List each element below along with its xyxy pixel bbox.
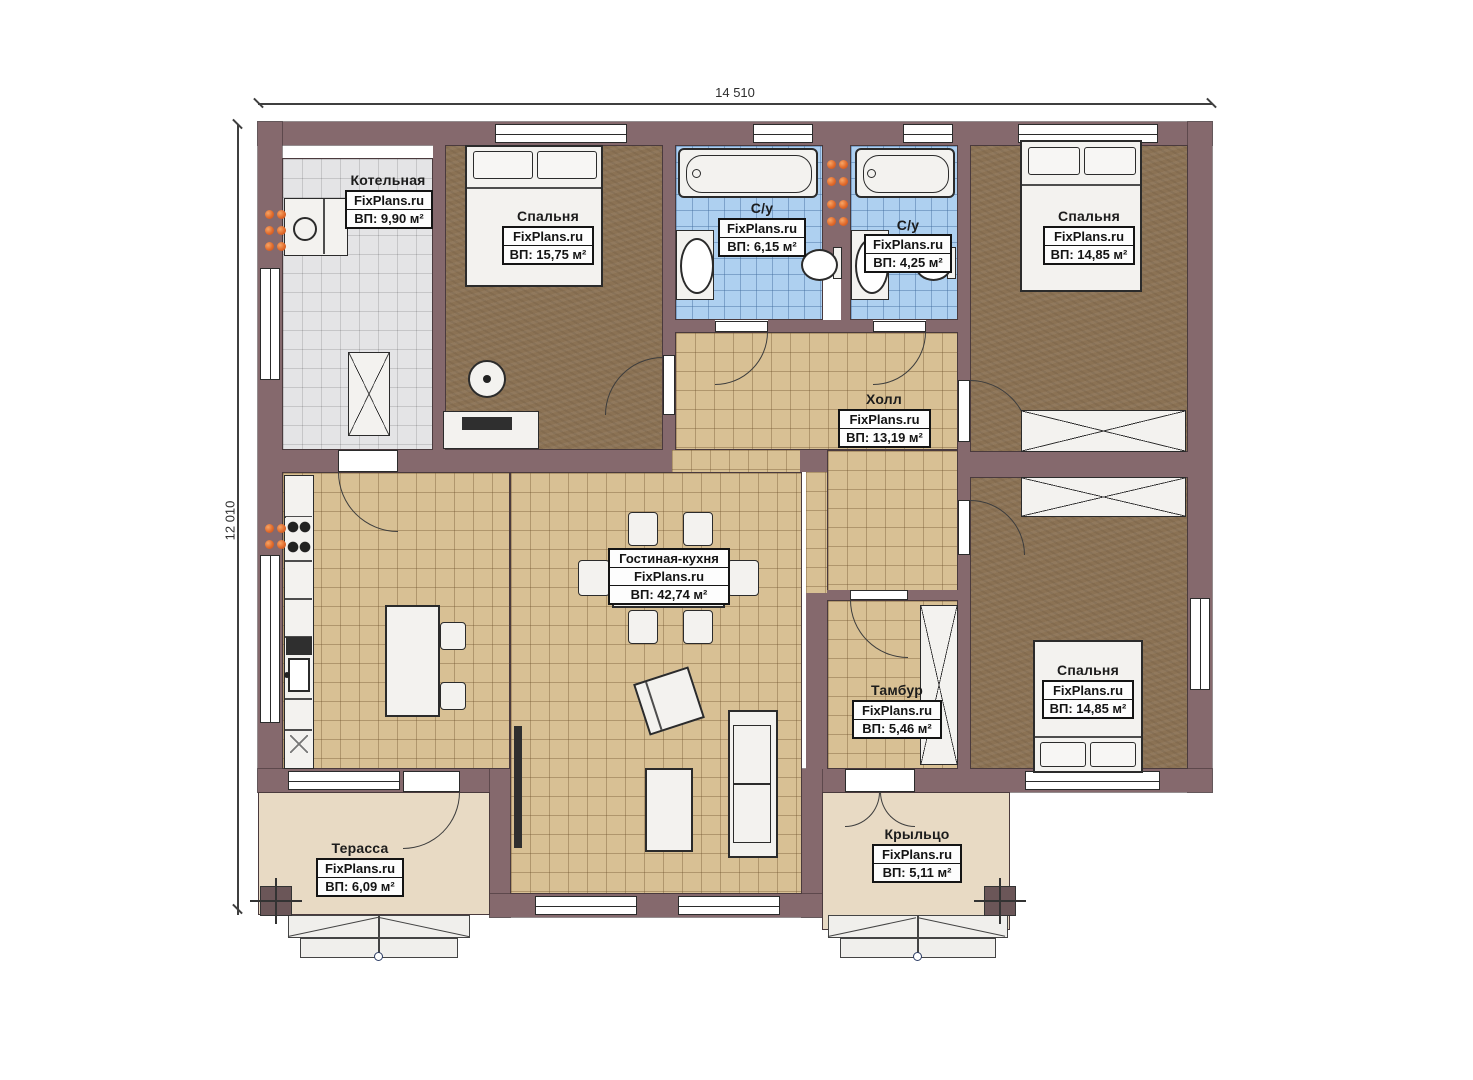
pillow xyxy=(1040,742,1086,767)
room-title-boiler: Котельная xyxy=(350,172,425,188)
door-leaf xyxy=(663,355,675,415)
floor-passage xyxy=(806,472,827,593)
room-label-bedroom3: FixPlans.ru ВП: 14,85 м² xyxy=(1042,680,1134,719)
brand-watermark: FixPlans.ru xyxy=(720,220,804,237)
room-title-terrace: Терасса xyxy=(332,840,389,856)
door-leaf xyxy=(958,500,970,555)
window xyxy=(678,896,780,915)
wall-partition xyxy=(841,260,850,320)
window xyxy=(753,124,813,143)
radiator-dot xyxy=(839,160,848,169)
radiator-dot xyxy=(827,200,836,209)
pot xyxy=(468,360,506,398)
divider xyxy=(285,729,312,731)
bathtub-drain xyxy=(692,169,701,178)
sofa xyxy=(728,710,778,858)
wardrobe xyxy=(1021,410,1186,452)
room-label-bath2: FixPlans.ru ВП: 4,25 м² xyxy=(864,234,952,273)
window xyxy=(1025,771,1160,790)
wall-partition xyxy=(958,145,970,380)
room-title-living: Гостиная-кухня xyxy=(610,550,728,567)
brand-watermark: FixPlans.ru xyxy=(610,567,728,585)
wardrobe xyxy=(920,605,958,765)
bar-stool xyxy=(440,682,466,710)
radiator-dot xyxy=(277,524,286,533)
entrance-door-leaf xyxy=(845,769,915,792)
wall-partition xyxy=(675,320,715,332)
wall-partition xyxy=(663,415,675,450)
divider xyxy=(285,560,312,562)
blanket-line xyxy=(1035,736,1141,738)
sink xyxy=(680,238,714,294)
radiator-dot xyxy=(265,524,274,533)
radiator-dot xyxy=(265,210,274,219)
boiler-equipment xyxy=(348,352,390,436)
room-title-bedroom2: Спальня xyxy=(1058,208,1120,224)
radiator-dot xyxy=(839,200,848,209)
divider xyxy=(285,698,312,700)
room-area: ВП: 4,25 м² xyxy=(866,253,950,271)
door-leaf xyxy=(715,321,768,332)
radiator-dot xyxy=(277,242,286,251)
room-title-bedroom3: Спальня xyxy=(1057,662,1119,678)
room-title-bath1: С/у xyxy=(751,200,773,216)
window xyxy=(1190,598,1210,690)
room-label-terrace: FixPlans.ru ВП: 6,09 м² xyxy=(316,858,404,897)
brand-watermark: FixPlans.ru xyxy=(504,228,592,245)
radiator-dot xyxy=(277,210,286,219)
room-area: ВП: 9,90 м² xyxy=(347,209,431,227)
bathtub-drain xyxy=(867,169,876,178)
door-leaf xyxy=(338,450,398,472)
radiator-dot xyxy=(265,226,274,235)
radiator-dot xyxy=(265,242,274,251)
wall-right xyxy=(1188,122,1212,792)
brand-watermark: FixPlans.ru xyxy=(318,860,402,877)
room-label-hall: FixPlans.ru ВП: 13,19 м² xyxy=(838,409,931,448)
blanket-line xyxy=(1022,184,1140,186)
toilet-bowl xyxy=(801,249,838,281)
wall-partition xyxy=(827,590,850,600)
floor-hall-opening xyxy=(672,450,800,472)
chair xyxy=(683,610,713,644)
radiator-dot xyxy=(827,177,836,186)
room-label-boiler: FixPlans.ru ВП: 9,90 м² xyxy=(345,190,433,229)
room-area: ВП: 5,46 м² xyxy=(854,719,940,737)
brand-watermark: FixPlans.ru xyxy=(866,236,950,253)
wall-partition xyxy=(768,320,873,332)
brand-watermark: FixPlans.ru xyxy=(854,702,940,719)
wardrobe xyxy=(1021,477,1186,517)
floor-plan: 14 510 12 010 xyxy=(0,0,1473,1080)
divider xyxy=(285,598,312,600)
bar-stool xyxy=(440,622,466,650)
cabinet-x xyxy=(290,735,308,753)
room-label-vestibule: FixPlans.ru ВП: 5,46 м² xyxy=(852,700,942,739)
wall-partition xyxy=(663,145,675,355)
wall-partition xyxy=(800,450,827,472)
bathtub xyxy=(678,148,818,198)
window xyxy=(288,771,400,790)
brand-watermark: FixPlans.ru xyxy=(874,846,960,863)
column-axis xyxy=(275,878,277,924)
bathtub xyxy=(855,148,955,198)
room-label-porch: FixPlans.ru ВП: 5,11 м² xyxy=(872,844,962,883)
radiator-dot xyxy=(265,540,274,549)
chair xyxy=(683,512,713,546)
room-title-bath2: С/у xyxy=(897,217,919,233)
step-marker xyxy=(374,952,383,961)
room-area: ВП: 42,74 м² xyxy=(610,585,728,603)
column-axis xyxy=(999,878,1001,924)
door-leaf xyxy=(403,771,460,792)
wall-partition xyxy=(398,450,672,472)
pillow xyxy=(473,151,533,179)
chair xyxy=(727,560,759,596)
brand-watermark: FixPlans.ru xyxy=(347,192,431,209)
chair xyxy=(628,512,658,546)
step-marker xyxy=(913,952,922,961)
dimension-height: 12 010 xyxy=(222,501,237,541)
room-title-vestibule: Тамбур xyxy=(871,682,923,698)
window xyxy=(903,124,953,143)
brand-watermark: FixPlans.ru xyxy=(840,411,929,428)
wall-partition xyxy=(958,442,970,452)
pillow xyxy=(537,151,597,179)
wall-partition xyxy=(908,590,958,600)
room-area: ВП: 15,75 м² xyxy=(504,245,592,263)
room-title-bedroom1: Спальня xyxy=(517,208,579,224)
room-label-bedroom2: FixPlans.ru ВП: 14,85 м² xyxy=(1043,226,1135,265)
window xyxy=(260,268,280,380)
sofa-cushion xyxy=(733,784,771,843)
radiator-dot xyxy=(839,217,848,226)
blanket-line xyxy=(467,187,601,189)
door-leaf xyxy=(958,380,970,442)
wall-partition xyxy=(926,320,958,332)
brand-watermark: FixPlans.ru xyxy=(1044,682,1132,699)
room-title-hall: Холл xyxy=(866,391,902,407)
radiator-dot xyxy=(827,217,836,226)
room-area: ВП: 6,09 м² xyxy=(318,877,402,895)
boiler-dial xyxy=(293,217,317,241)
kitchen-sink xyxy=(288,658,310,692)
window xyxy=(260,555,280,723)
bathtub-inner xyxy=(686,155,812,193)
chair xyxy=(578,560,610,596)
pillow xyxy=(1090,742,1136,767)
door-leaf xyxy=(873,321,926,332)
wall-partition xyxy=(958,477,970,500)
boiler-unit xyxy=(284,198,348,256)
kitchen-island xyxy=(385,605,440,717)
wall-partition xyxy=(806,593,827,769)
wall-partition xyxy=(258,450,338,472)
faucet-dot xyxy=(284,672,290,678)
radiator-dot xyxy=(839,177,848,186)
window xyxy=(495,124,627,143)
pillow xyxy=(1028,147,1080,175)
brand-watermark: FixPlans.ru xyxy=(1045,228,1133,245)
radiator-dot xyxy=(277,226,286,235)
room-label-bath1: FixPlans.ru ВП: 6,15 м² xyxy=(718,218,806,257)
radiator-dot xyxy=(827,160,836,169)
radiator-dot xyxy=(277,540,286,549)
room-area: ВП: 13,19 м² xyxy=(840,428,929,446)
wall-partition xyxy=(958,452,1188,477)
room-area: ВП: 5,11 м² xyxy=(874,863,960,881)
coffee-table xyxy=(645,768,693,852)
room-area: ВП: 14,85 м² xyxy=(1044,699,1132,717)
room-label-living: Гостиная-кухня FixPlans.ru ВП: 42,74 м² xyxy=(608,548,730,605)
appliance xyxy=(286,637,312,655)
wall-partition xyxy=(433,145,445,450)
dimension-width: 14 510 xyxy=(715,85,755,100)
pillow xyxy=(1084,147,1136,175)
stove-icon xyxy=(286,517,312,557)
door-leaf xyxy=(850,590,908,600)
divider xyxy=(323,199,325,254)
computer-monitor xyxy=(462,417,512,430)
room-label-bedroom1: FixPlans.ru ВП: 15,75 м² xyxy=(502,226,594,265)
tv xyxy=(514,726,522,848)
room-area: ВП: 14,85 м² xyxy=(1045,245,1133,263)
floor-corridor xyxy=(827,450,958,593)
pot-knob xyxy=(483,375,491,383)
divider xyxy=(645,682,662,730)
window xyxy=(535,896,637,915)
wall-partition xyxy=(958,555,970,769)
dimension-line-top xyxy=(258,103,1212,105)
sofa-cushion xyxy=(733,725,771,784)
chair xyxy=(628,610,658,644)
room-area: ВП: 6,15 м² xyxy=(720,237,804,255)
room-title-porch: Крыльцо xyxy=(884,826,949,842)
